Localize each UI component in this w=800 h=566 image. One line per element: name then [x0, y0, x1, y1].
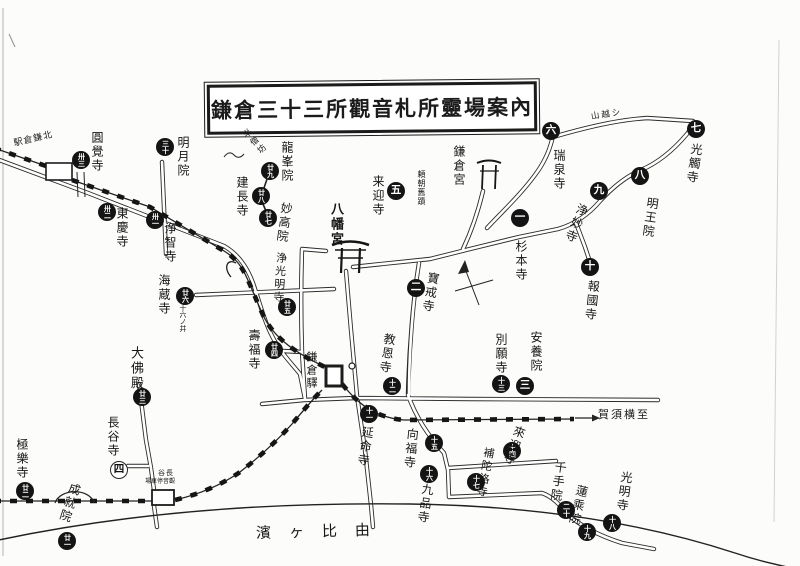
site-21-badge: 廿一	[58, 532, 76, 550]
site-1-label: 杉本寺	[515, 240, 527, 282]
site-30-badge: 三十	[156, 138, 174, 156]
site-13-label: 別願寺	[495, 333, 507, 375]
site-8-badge: 八	[631, 167, 649, 185]
site-1-badge: 一	[511, 209, 529, 227]
site-21-label: 成就院	[57, 481, 81, 525]
site-7-label: 光觸寺	[685, 142, 703, 185]
site-11-label: 延命寺	[356, 425, 374, 468]
site-22-badge: 廿二	[16, 482, 34, 500]
map-root: 鎌倉三十三所觀音札所靈場案內 八幡宮 鎌倉宮 鎌倉驛 駅倉鎌北 谷長 場車停音觀…	[0, 0, 800, 566]
site-2-label: 寶戒寺	[421, 271, 440, 314]
site-13-badge: 十三	[492, 375, 510, 393]
site-33-label: 圓覺寺	[91, 131, 103, 173]
site-31-label: 浄智寺	[164, 222, 176, 264]
site-27-badge: 廿七	[259, 209, 277, 227]
site-12-badge: 十二	[383, 377, 401, 395]
site-5-badge: 五	[387, 182, 405, 200]
site-27-label: 妙高院	[275, 201, 293, 244]
site-15-badge: 十五	[425, 434, 443, 452]
site-20-badge: 二十	[557, 501, 575, 519]
site-4-label: 長谷寺	[107, 416, 119, 458]
site-28-label: 建長寺	[236, 176, 248, 218]
site-24-label: 壽福寺	[248, 329, 260, 371]
site-28-badge: 廿八	[252, 187, 270, 205]
site-29-label: 龍峯院	[281, 141, 293, 183]
site-18-label: 光明寺	[615, 470, 633, 513]
site-23-label: 大佛殿	[130, 346, 143, 391]
site-19-badge: 十九	[578, 523, 596, 541]
site-12-label: 教恩寺	[378, 332, 396, 375]
site-10-label: 報國寺	[584, 279, 600, 322]
marker-layer: 一杉本寺二寶戒寺三安養院四長谷寺五来迎寺六瑞泉寺七光觸寺八明王院九浄妙寺十報國寺…	[0, 0, 800, 566]
site-29-badge: 廿九	[261, 162, 279, 180]
site-24-badge: 廿四	[265, 341, 283, 359]
site-3-label: 安養院	[530, 331, 542, 373]
site-6-label: 瑞泉寺	[553, 149, 565, 191]
site-26-label: 海蔵寺	[158, 274, 170, 316]
site-16-label: 九品寺	[416, 482, 434, 525]
site-5-label: 来迎寺	[372, 175, 384, 217]
site-31-badge: 卅一	[146, 211, 164, 229]
site-25-label: 浄光明寺	[271, 252, 286, 305]
site-32-badge: 卅二	[98, 203, 116, 221]
site-10-badge: 十	[581, 258, 599, 276]
site-4-badge: 四	[110, 461, 128, 479]
site-9-badge: 九	[590, 182, 608, 200]
site-7-badge: 七	[687, 120, 705, 138]
site-6-badge: 六	[542, 122, 560, 140]
site-20-label: 千手院	[549, 460, 567, 503]
site-22-label: 極樂寺	[16, 438, 28, 480]
site-15-label: 向福寺	[403, 427, 419, 470]
site-33-badge: 卅三	[72, 151, 90, 169]
site-11-badge: 十一	[360, 405, 378, 423]
site-3-badge: 三	[516, 377, 534, 395]
site-18-badge: 十八	[603, 514, 621, 532]
site-8-label: 明王院	[641, 196, 659, 239]
site-9-label: 浄妙寺	[563, 202, 590, 245]
site-32-label: 東慶寺	[116, 207, 128, 249]
site-26-badge: 廿六	[176, 287, 194, 305]
site-16-badge: 十六	[420, 465, 438, 483]
site-30-label: 明月院	[177, 136, 189, 178]
